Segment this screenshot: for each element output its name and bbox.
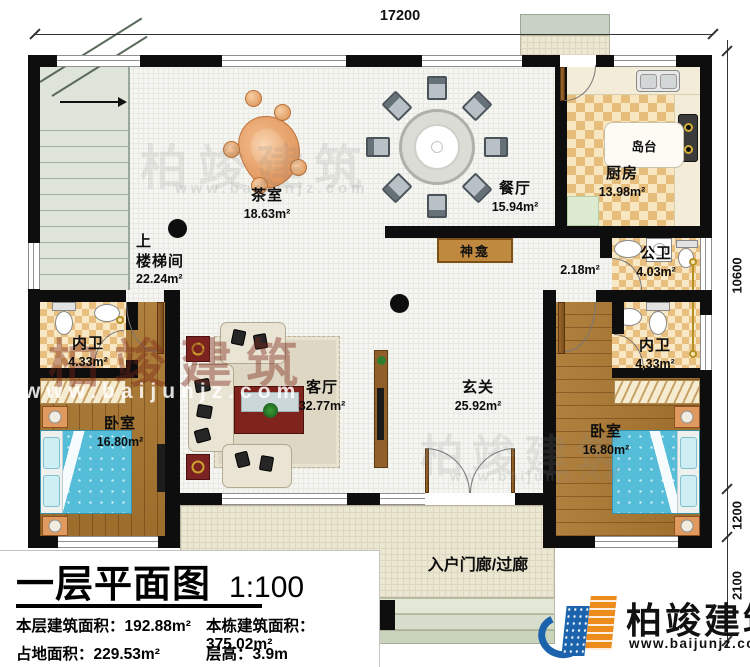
window xyxy=(422,55,522,67)
toilet-bowl xyxy=(649,311,667,335)
toilet-tank xyxy=(52,302,76,311)
stat-value: 3.9m xyxy=(253,646,288,663)
window xyxy=(700,315,712,370)
nightstand xyxy=(42,516,68,536)
left-bedroom-door xyxy=(157,302,164,354)
window xyxy=(614,55,676,67)
sofa-pillow xyxy=(194,378,211,393)
tv xyxy=(377,388,384,440)
window xyxy=(58,536,158,548)
sink-basin xyxy=(660,74,677,89)
coffee-table xyxy=(234,386,304,434)
title-block: 一层平面图 1:100 本层建筑面积：192.88m² 本栋建筑面积：375.0… xyxy=(0,550,380,667)
stat-label: 层高： xyxy=(206,646,253,663)
tea-stool xyxy=(274,104,291,121)
dining-chair xyxy=(427,76,447,100)
washer xyxy=(646,238,672,262)
wall-leftblock-top-a xyxy=(28,290,126,302)
rail-knob xyxy=(689,258,697,266)
bed-duvet xyxy=(63,431,131,513)
bed-pillow xyxy=(680,475,697,507)
wall-leftbath-bottom xyxy=(40,368,138,378)
tea-stool xyxy=(223,141,240,158)
sofa-pillow xyxy=(253,333,268,350)
brand-logo: 柏竣建筑 www.baijunjz.com xyxy=(530,588,750,664)
rail xyxy=(692,262,694,354)
right-wardrobe xyxy=(614,380,700,404)
stat-value: 229.53m² xyxy=(94,646,160,663)
column xyxy=(390,294,409,313)
wall-leftblock-right xyxy=(165,290,180,548)
scale-label: 1:100 xyxy=(229,571,304,605)
shrine: 神龛 xyxy=(437,238,513,263)
dim-line-right xyxy=(727,40,728,648)
wall-rightbath-a xyxy=(612,302,624,334)
window xyxy=(28,243,40,289)
left-wardrobe xyxy=(40,380,126,404)
stat-land-area: 占地面积：229.53m² xyxy=(16,642,160,664)
wall-pubbath-left xyxy=(600,238,612,258)
nightstand xyxy=(674,406,700,428)
dining-chair xyxy=(484,137,508,157)
bed-pillow xyxy=(680,437,697,469)
back-step xyxy=(520,14,610,35)
sink-basin xyxy=(640,74,657,89)
window xyxy=(595,536,678,548)
nightstand xyxy=(674,516,700,536)
burner xyxy=(684,123,693,132)
bed-duvet xyxy=(613,431,677,513)
window xyxy=(222,55,346,67)
window xyxy=(57,55,140,67)
title-row: 一层平面图 1:100 xyxy=(16,553,304,608)
wall-south-c xyxy=(515,493,555,505)
window xyxy=(380,493,425,505)
toilet-tank xyxy=(676,240,698,248)
tea-stool xyxy=(290,159,307,176)
bedroom-tv xyxy=(157,444,165,492)
stair-up-arrow xyxy=(60,101,120,103)
island-label: 岛台 xyxy=(631,136,656,155)
dim-line-top xyxy=(35,34,713,35)
wall-rightblock-top-b xyxy=(596,290,712,302)
rail-knob xyxy=(689,350,697,358)
sofa-pillow xyxy=(196,404,213,419)
nightstand xyxy=(42,406,68,428)
dining-chair xyxy=(427,194,447,218)
window xyxy=(222,493,347,505)
dim-top-label: 17200 xyxy=(360,8,440,24)
wall-dining-kitchen xyxy=(385,226,712,238)
side-table xyxy=(186,336,210,362)
side-table xyxy=(186,454,210,480)
sofa-top xyxy=(220,322,286,364)
stat-label: 本栋建筑面积： xyxy=(206,618,315,635)
brand-website: www.baijunjz.com xyxy=(629,636,750,651)
stat-value: 192.88m² xyxy=(125,618,191,635)
stair-treads xyxy=(38,128,128,290)
dim-right-upper: 10600 xyxy=(730,255,745,297)
table-plant xyxy=(263,403,278,418)
stair-up-arrowhead xyxy=(118,97,127,107)
left-bed xyxy=(40,430,132,514)
stairs xyxy=(38,63,130,290)
column xyxy=(168,219,187,238)
sofa-pillow xyxy=(259,455,274,472)
stat-label: 占地面积： xyxy=(16,646,94,663)
bath-sink xyxy=(614,240,642,258)
toilet-bowl xyxy=(55,311,73,335)
towel-knob xyxy=(116,316,124,324)
wall-leftbath-b xyxy=(126,360,138,368)
porch-wall-stub xyxy=(378,600,395,630)
stat-label: 本层建筑面积： xyxy=(16,618,125,635)
toilet-tank xyxy=(646,302,670,311)
logo-building-orange-icon xyxy=(585,596,617,650)
title-underline xyxy=(16,604,262,608)
washer-door xyxy=(653,243,666,256)
burner xyxy=(684,145,693,154)
right-bedroom-door xyxy=(558,302,565,354)
right-bed xyxy=(612,430,700,514)
dining-chair xyxy=(366,137,390,157)
tea-stool xyxy=(251,177,268,194)
kitchen-island: 岛台 xyxy=(604,122,684,168)
wall-south-a xyxy=(180,493,222,505)
wall-south-b xyxy=(347,493,380,505)
bed-pillow xyxy=(43,475,60,507)
wall-rightblock-left xyxy=(543,290,556,548)
kitchen-sink xyxy=(636,70,680,92)
partition-plant xyxy=(377,356,386,365)
dim-right-mid: 1200 xyxy=(730,495,745,537)
page-title: 一层平面图 xyxy=(16,553,211,608)
tea-stool xyxy=(245,90,262,107)
stat-floor-area: 本层建筑面积：192.88m² xyxy=(16,614,191,636)
sofa-bottom xyxy=(222,444,292,488)
stat-floor-height: 层高：3.9m xyxy=(206,642,288,664)
dining-table-hub xyxy=(431,141,443,153)
kitchen-appliance xyxy=(567,196,599,226)
shrine-label: 神龛 xyxy=(460,241,490,260)
window xyxy=(700,238,712,290)
back-porch xyxy=(520,35,610,56)
floor-plan-page: 岛台 神龛 xyxy=(0,0,750,667)
bed-pillow xyxy=(43,437,60,469)
